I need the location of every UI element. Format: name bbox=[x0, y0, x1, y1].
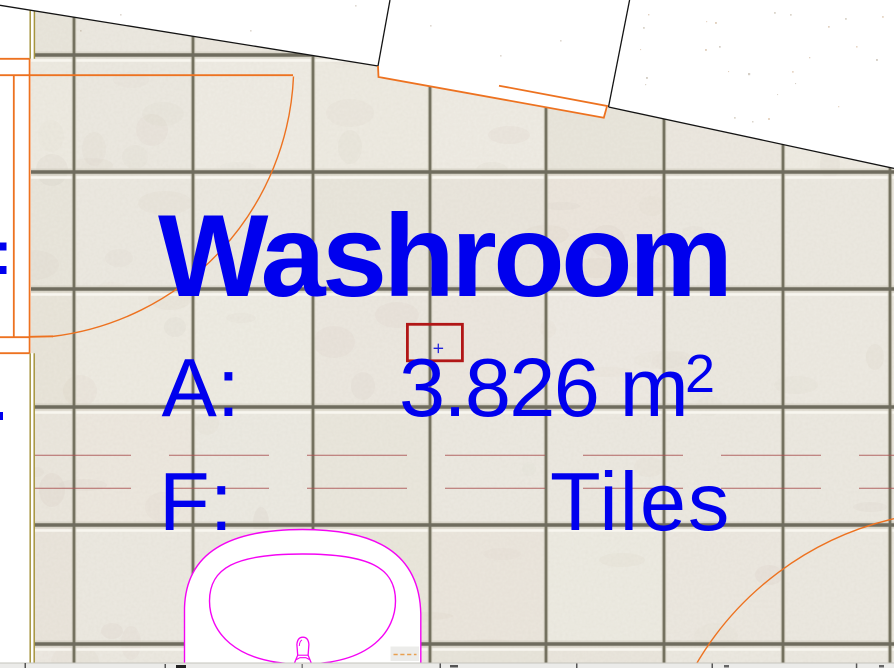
svg-text:Tiles: Tiles bbox=[550, 455, 731, 548]
svg-text:2: 2 bbox=[685, 344, 715, 404]
svg-text:A:: A: bbox=[162, 341, 240, 434]
svg-text:F:: F: bbox=[159, 455, 233, 548]
svg-text:Washroom: Washroom bbox=[158, 190, 729, 321]
svg-text:3.826 m: 3.826 m bbox=[399, 341, 687, 434]
